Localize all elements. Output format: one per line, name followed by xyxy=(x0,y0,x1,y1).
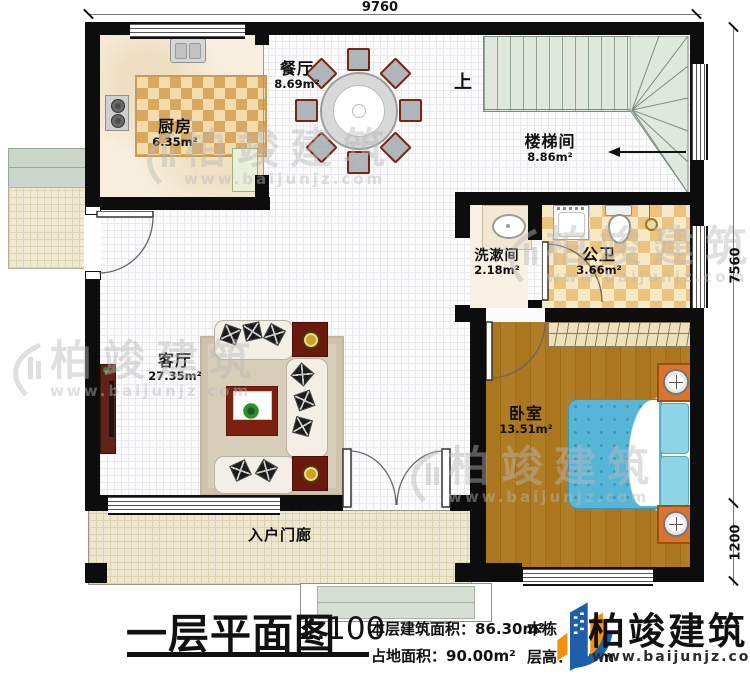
washer-panel xyxy=(557,207,584,210)
side-table-top xyxy=(292,322,328,357)
porch-floor xyxy=(88,510,472,585)
stair-straight-run xyxy=(483,36,632,112)
wall-wash-bath-divider xyxy=(528,205,542,240)
label-washroom: 洗漱间 2.18m² xyxy=(464,248,530,277)
dimension-right-upper-value: 7560 xyxy=(729,236,744,296)
label-living: 客厅 27.35m² xyxy=(130,352,220,384)
coffee-table xyxy=(226,386,278,436)
stairwell-name: 楼梯间 xyxy=(505,133,595,151)
side-step-line xyxy=(9,167,87,168)
tv-cabinet xyxy=(100,364,116,454)
floor-plan: 上 xyxy=(0,0,750,675)
window-bathroom-right xyxy=(690,226,708,308)
plant xyxy=(242,402,260,420)
wall-living-bottom-pier-mid xyxy=(280,495,343,511)
bedroom-name: 卧室 xyxy=(488,405,564,423)
brand-url: www.baijunjz.com xyxy=(592,649,750,665)
brand-name: 柏竣建筑 xyxy=(588,601,748,655)
porch-name: 入户门廊 xyxy=(225,527,335,544)
washer-door xyxy=(558,212,585,237)
french-doors xyxy=(341,443,452,510)
wall-kitchen-stub-top xyxy=(255,22,269,45)
dining-chair xyxy=(399,99,422,122)
sofa-pillow xyxy=(242,321,262,341)
floor-area-value: 86.30m² xyxy=(475,620,545,638)
side-table-decor xyxy=(302,331,320,349)
window-living-bottom xyxy=(108,495,280,515)
dining-table-center xyxy=(352,104,366,118)
stair-up-label: 上 xyxy=(454,68,472,94)
living-area: 27.35m² xyxy=(130,370,220,383)
wall-living-bottom-pier-left xyxy=(85,495,108,511)
wall-bedroom-corner-pier xyxy=(455,563,522,582)
window-bedroom-bottom xyxy=(523,567,653,586)
side-platform xyxy=(8,187,88,269)
wall-living-bottom-pier-right xyxy=(450,495,486,511)
stair-winders xyxy=(630,36,690,195)
label-dining: 餐厅 8.69m² xyxy=(262,60,332,92)
window-stairwell-right xyxy=(690,64,708,160)
window-kitchen-top xyxy=(130,22,245,39)
bathroom-name: 公卫 xyxy=(566,246,632,264)
label-porch: 入户门廊 xyxy=(225,527,335,544)
label-bedroom: 卧室 13.51m² xyxy=(488,405,564,437)
wall-kitchen-bottom xyxy=(85,197,270,210)
dimension-top-value: 9760 xyxy=(340,0,420,15)
kitchen-name: 厨房 xyxy=(140,118,210,136)
sink-bowl-left xyxy=(175,43,187,59)
living-name: 客厅 xyxy=(130,352,220,370)
wardrobe xyxy=(548,322,692,347)
burner-1 xyxy=(111,99,125,113)
stove xyxy=(105,95,129,131)
washroom-area: 2.18m² xyxy=(464,264,530,277)
wall-porch-corner-pier xyxy=(85,563,107,583)
bed-pillow-top xyxy=(660,403,689,454)
sofa-bottom xyxy=(214,456,296,494)
site-area-line: 占地面积：90.00m² xyxy=(371,645,516,666)
label-kitchen: 厨房 6.35m² xyxy=(140,118,210,150)
side-steps xyxy=(8,148,88,189)
side-table-decor xyxy=(302,465,320,483)
toilet-bowl xyxy=(608,214,631,244)
entry-step-1 xyxy=(317,586,475,603)
label-stairwell: 楼梯间 8.86m² xyxy=(505,133,595,165)
bedroom-area: 13.51m² xyxy=(488,423,564,436)
wash-basin xyxy=(492,214,526,239)
label-bathroom: 公卫 3.66m² xyxy=(566,246,632,278)
dining-name: 餐厅 xyxy=(262,60,332,78)
wall-stair-bottom xyxy=(455,192,704,205)
stairwell-area: 8.86m² xyxy=(505,151,595,164)
wardrobe-rail xyxy=(549,333,691,334)
floor-area-line: 本层建筑面积：86.30m² xyxy=(370,618,545,639)
toilet xyxy=(604,205,632,243)
drain-stem xyxy=(649,205,650,219)
dimension-right-lower-value: 1200 xyxy=(729,513,744,573)
wall-kitchen-stub-bottom xyxy=(255,175,269,210)
sink-bowl-right xyxy=(189,43,201,59)
lamp-top xyxy=(663,369,689,395)
title-underline xyxy=(127,652,369,657)
site-area-value: 90.00m² xyxy=(446,647,516,665)
bathroom-area: 3.66m² xyxy=(566,264,632,277)
vanity-counter xyxy=(482,205,532,250)
floor-drain xyxy=(645,218,658,231)
side-table-bottom xyxy=(292,456,328,491)
bedroom-door xyxy=(486,318,548,382)
dining-chair xyxy=(295,99,318,122)
site-area-label: 占地面积： xyxy=(371,647,446,665)
wall-bedroom-left xyxy=(470,322,486,567)
dining-chair xyxy=(347,48,370,71)
burner-2 xyxy=(111,114,125,128)
stair-direction-arrow xyxy=(606,144,690,160)
tv-decor xyxy=(103,367,109,373)
dining-area: 8.69m² xyxy=(262,78,332,91)
watermark-logo-icon xyxy=(4,341,46,399)
lamp-bottom xyxy=(663,511,689,537)
washing-machine xyxy=(553,205,589,240)
bed-pillow-bottom xyxy=(660,456,689,507)
entry-door xyxy=(93,211,157,277)
basin-drain xyxy=(506,224,510,228)
tv xyxy=(109,381,114,437)
floor-area-label: 本层建筑面积： xyxy=(370,620,475,638)
dining-chair xyxy=(347,151,370,174)
kitchen-area: 6.35m² xyxy=(140,136,210,149)
washroom-name: 洗漱间 xyxy=(464,248,530,264)
kitchen-sink xyxy=(170,38,206,63)
wall-washroom-stub-top xyxy=(455,205,470,238)
